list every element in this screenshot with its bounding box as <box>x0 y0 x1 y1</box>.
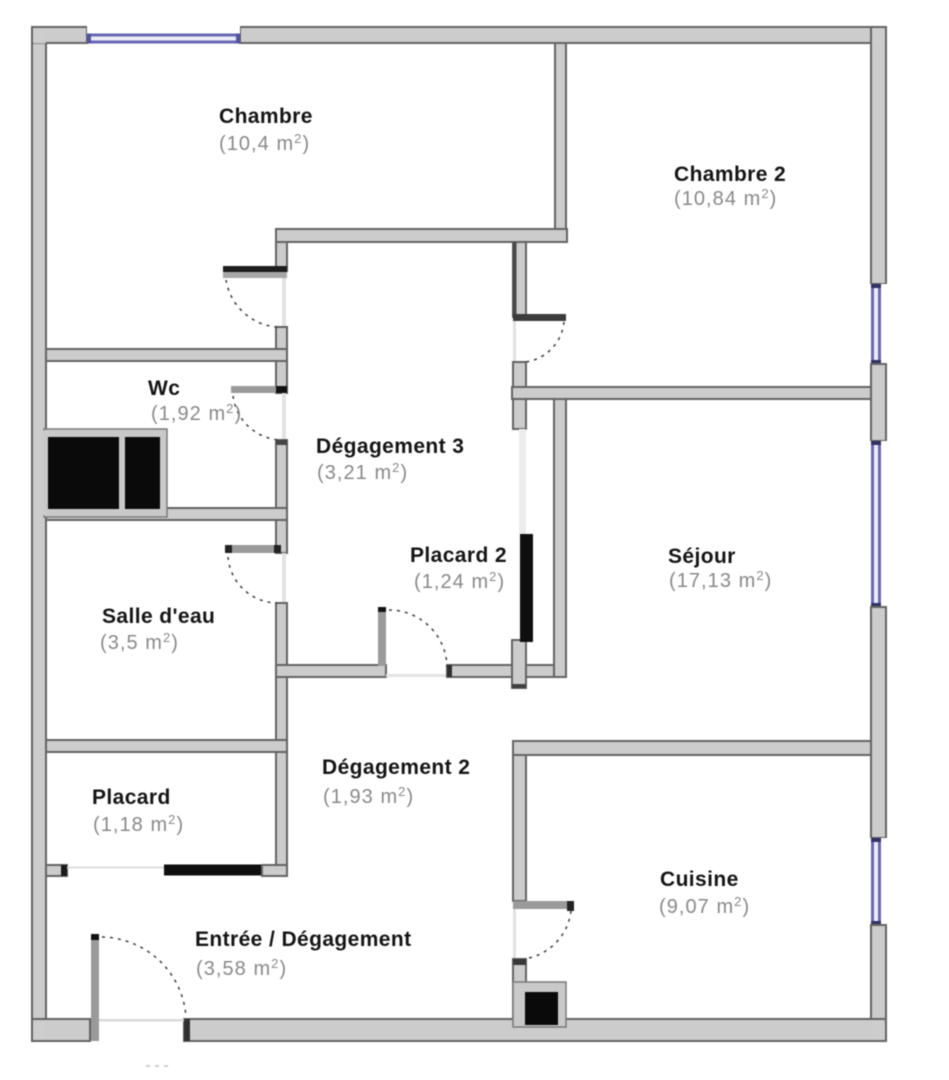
svg-text:Wc: Wc <box>148 377 180 400</box>
svg-text:Placard: Placard <box>92 786 171 809</box>
svg-text:Chambre: Chambre <box>219 105 313 128</box>
svg-text:Placard 2: Placard 2 <box>410 544 507 567</box>
svg-text:Chambre 2: Chambre 2 <box>674 163 786 186</box>
svg-text:Salle d'eau: Salle d'eau <box>102 605 215 628</box>
svg-text:Entrée / Dégagement: Entrée / Dégagement <box>195 928 412 951</box>
svg-text:Séjour: Séjour <box>668 545 736 568</box>
svg-text:Cuisine: Cuisine <box>660 868 739 891</box>
svg-text:Dégagement 2: Dégagement 2 <box>322 756 470 779</box>
svg-text:Dégagement 3: Dégagement 3 <box>316 435 464 458</box>
